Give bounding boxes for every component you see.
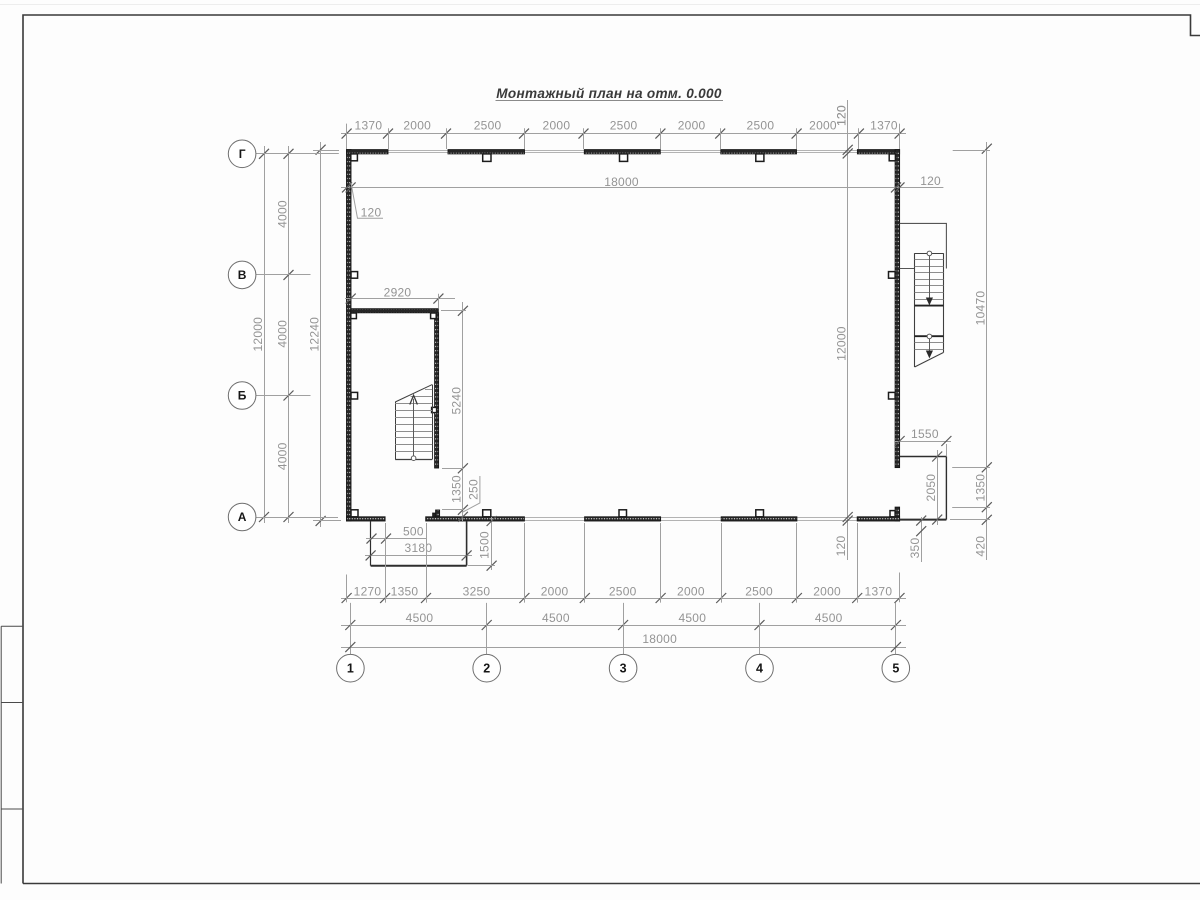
svg-text:1370: 1370: [355, 119, 383, 133]
svg-text:2000: 2000: [403, 119, 431, 133]
svg-text:12000: 12000: [251, 317, 265, 352]
svg-text:12240: 12240: [307, 317, 321, 352]
svg-text:420: 420: [974, 536, 988, 557]
svg-text:1550: 1550: [911, 427, 939, 441]
svg-text:2500: 2500: [747, 119, 775, 133]
svg-text:500: 500: [403, 525, 424, 539]
svg-text:120: 120: [835, 105, 849, 126]
svg-text:В: В: [238, 268, 247, 282]
svg-text:2000: 2000: [677, 584, 705, 598]
svg-text:2000: 2000: [543, 119, 571, 133]
svg-text:Б: Б: [238, 389, 247, 403]
svg-text:2000: 2000: [809, 119, 837, 133]
svg-text:2050: 2050: [924, 474, 938, 502]
svg-text:5: 5: [892, 662, 899, 676]
svg-text:4000: 4000: [275, 320, 289, 348]
svg-text:2000: 2000: [678, 119, 706, 133]
svg-text:18000: 18000: [642, 632, 677, 646]
svg-text:1270: 1270: [354, 584, 382, 598]
svg-text:4500: 4500: [406, 611, 434, 625]
svg-text:120: 120: [834, 536, 848, 557]
svg-text:1350: 1350: [391, 584, 419, 598]
svg-text:4000: 4000: [275, 442, 289, 470]
svg-text:2920: 2920: [384, 286, 412, 300]
svg-text:1: 1: [347, 662, 354, 676]
svg-text:2500: 2500: [745, 584, 773, 598]
svg-text:4000: 4000: [275, 200, 289, 228]
svg-text:1350: 1350: [974, 474, 988, 502]
svg-text:120: 120: [361, 206, 382, 220]
svg-text:18000: 18000: [604, 175, 639, 189]
svg-text:4: 4: [756, 662, 763, 676]
svg-text:1370: 1370: [865, 584, 893, 598]
svg-text:2500: 2500: [474, 119, 502, 133]
svg-text:1350: 1350: [450, 475, 464, 503]
svg-text:2500: 2500: [609, 584, 637, 598]
svg-text:А: А: [238, 510, 247, 524]
svg-text:250: 250: [467, 479, 481, 500]
svg-text:3180: 3180: [405, 541, 433, 555]
svg-text:2000: 2000: [813, 584, 841, 598]
svg-text:3250: 3250: [463, 584, 491, 598]
svg-text:5240: 5240: [450, 387, 464, 415]
svg-text:2: 2: [483, 662, 490, 676]
svg-text:12000: 12000: [835, 326, 849, 361]
svg-text:1500: 1500: [477, 531, 491, 559]
svg-text:120: 120: [920, 174, 941, 188]
svg-text:10470: 10470: [974, 291, 988, 326]
svg-text:350: 350: [908, 538, 922, 559]
svg-text:1370: 1370: [870, 119, 898, 133]
svg-text:Г: Г: [239, 147, 246, 161]
svg-text:Монтажный план на отм. 0.000: Монтажный план на отм. 0.000: [496, 86, 722, 101]
svg-text:4500: 4500: [815, 611, 843, 625]
svg-text:4500: 4500: [542, 611, 570, 625]
svg-text:4500: 4500: [678, 611, 706, 625]
svg-text:2000: 2000: [541, 584, 569, 598]
svg-text:2500: 2500: [610, 119, 638, 133]
svg-text:3: 3: [620, 662, 627, 676]
